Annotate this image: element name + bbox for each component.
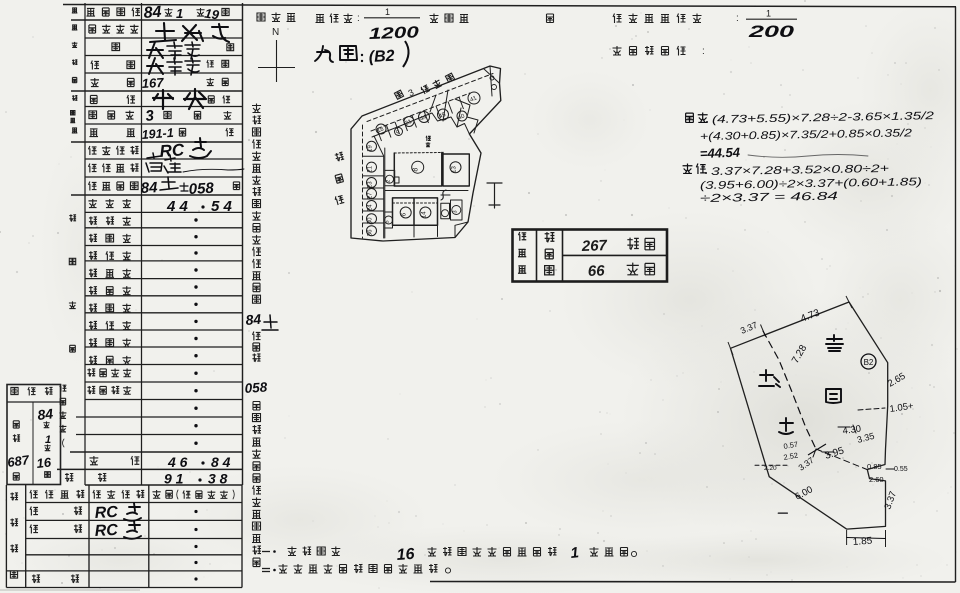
svg-text:8: 8 [413, 168, 420, 172]
svg-text:200: 200 [747, 22, 794, 41]
svg-text:4 6: 4 6 [167, 454, 188, 470]
svg-text:8 4: 8 4 [211, 454, 231, 470]
svg-text:3: 3 [452, 210, 458, 213]
svg-text:9 1: 9 1 [164, 471, 184, 487]
svg-text:30: 30 [368, 217, 374, 224]
svg-text:0.85: 0.85 [867, 462, 882, 471]
svg-text:1: 1 [45, 434, 51, 446]
svg-text:21: 21 [368, 165, 374, 172]
svg-text:19: 19 [368, 145, 374, 152]
svg-text:16: 16 [396, 546, 415, 564]
svg-text:14: 14 [421, 211, 427, 218]
svg-text:B2: B2 [864, 358, 874, 367]
svg-text:2.60: 2.60 [869, 475, 884, 484]
svg-text:267: 267 [581, 237, 608, 255]
svg-text:058: 058 [244, 379, 268, 396]
svg-text:1: 1 [176, 6, 183, 21]
svg-text:13: 13 [452, 166, 458, 173]
svg-text:16: 16 [36, 454, 53, 471]
svg-text:2: 2 [386, 180, 392, 183]
svg-text:19: 19 [204, 6, 221, 23]
svg-text::: : [736, 13, 739, 24]
svg-text:1200: 1200 [369, 24, 420, 43]
svg-text:5: 5 [385, 220, 391, 223]
svg-text:÷2×3.37 = 46.84: ÷2×3.37 = 46.84 [700, 191, 838, 205]
svg-text:84: 84 [140, 179, 158, 197]
svg-text:36: 36 [368, 229, 374, 236]
svg-text:3: 3 [407, 87, 416, 98]
svg-text::: : [702, 46, 705, 57]
svg-text:RC: RC [94, 522, 118, 540]
svg-text:23: 23 [368, 181, 374, 188]
svg-text:(B2: (B2 [368, 48, 395, 66]
svg-text:24: 24 [368, 204, 374, 211]
svg-text:27: 27 [368, 192, 374, 199]
svg-text:1: 1 [385, 7, 390, 17]
svg-text:RC: RC [94, 504, 118, 522]
svg-text:0.55: 0.55 [894, 466, 908, 473]
svg-text:1: 1 [766, 9, 771, 19]
svg-text:5 4: 5 4 [211, 198, 233, 215]
svg-text:84: 84 [37, 405, 54, 423]
svg-text:2.20: 2.20 [764, 465, 777, 472]
svg-text:4 4: 4 4 [166, 198, 189, 215]
svg-text::: : [357, 13, 360, 24]
svg-text:41: 41 [469, 95, 478, 104]
svg-text:1.85: 1.85 [852, 536, 873, 548]
svg-text:1: 1 [570, 544, 580, 562]
svg-text:191-1: 191-1 [141, 126, 174, 142]
svg-text:66: 66 [588, 262, 606, 280]
svg-text:=44.54: =44.54 [700, 145, 741, 161]
svg-text:167: 167 [141, 75, 164, 91]
svg-text:058: 058 [188, 180, 215, 198]
svg-text:84: 84 [143, 4, 162, 22]
svg-text:6: 6 [401, 213, 408, 217]
svg-text:3 8: 3 8 [208, 471, 228, 487]
svg-text:3: 3 [145, 107, 156, 125]
svg-text:N: N [272, 27, 279, 38]
svg-text:84: 84 [245, 311, 262, 328]
svg-text:687: 687 [6, 452, 30, 470]
